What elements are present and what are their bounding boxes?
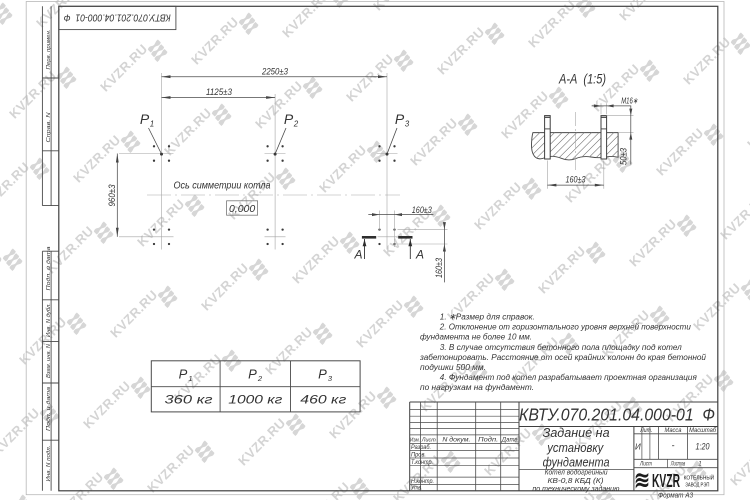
svg-text:Подп.: Подп. [478,437,498,444]
svg-text:1: 1 [698,461,701,468]
svg-text:Масштаб: Масштаб [689,427,716,434]
svg-text:960±3: 960±3 [107,184,118,207]
svg-text:Справ. N: Справ. N [46,112,52,143]
svg-text:4. Фундамент под котел разраба: 4. Фундамент под котел разрабатывает про… [440,372,697,382]
svg-text:2250±3: 2250±3 [261,66,288,77]
svg-text:Изм.: Изм. [410,438,420,444]
svg-text:3. В случае отсутствия бетонно: 3. В случае отсутствия бетонного пола пл… [440,342,682,352]
svg-text:360 кг: 360 кг [165,395,213,407]
svg-text:фундамента не более 10 мм.: фундамента не более 10 мм. [420,332,532,342]
svg-text:Разраб.: Разраб. [411,444,431,451]
svg-text:460 кг: 460 кг [300,395,346,407]
svg-text:2: 2 [257,374,263,383]
svg-text:A: A [353,248,362,262]
svg-text:Листов: Листов [670,461,686,468]
svg-text:Подп. и дата: Подп. и дата [46,386,52,431]
svg-text:160±3: 160±3 [434,258,444,278]
svg-text:1125±3: 1125±3 [206,87,233,98]
svg-text:Лист: Лист [639,461,652,468]
svg-text:P: P [318,367,327,382]
svg-text:2: 2 [293,120,299,129]
svg-text:A: A [415,248,424,262]
svg-text:М16∗: М16∗ [621,95,638,105]
svg-text:забетонировать. Расстояние от: забетонировать. Расстояние от осей крайн… [419,352,706,362]
svg-text:А-А (1:5): А-А (1:5) [558,72,606,87]
svg-text:P: P [284,111,294,127]
svg-text:Т.контр.: Т.контр. [411,459,433,466]
svg-text:Инв. N дубл.: Инв. N дубл. [46,303,52,337]
svg-text:160±3: 160±3 [566,175,586,185]
svg-text:Взам. инв. N: Взам. инв. N [46,343,52,378]
svg-text:1. ∗Размер для справок.: 1. ∗Размер для справок. [440,312,535,322]
svg-text:Дата: Дата [501,437,519,444]
svg-text:N докум.: N докум. [442,437,470,444]
svg-text:0,000: 0,000 [229,203,255,215]
svg-text:Ось симметрии котла: Ось симметрии котла [174,180,271,192]
svg-text:KVZR: KVZR [652,471,680,491]
svg-text:1: 1 [188,374,192,383]
svg-text:-: - [672,441,675,451]
svg-text:160±3: 160±3 [412,205,432,215]
svg-text:по техническому заданию: по техническому заданию [532,484,619,493]
svg-text:КВТУ.070.201.04.000-01 Ф: КВТУ.070.201.04.000-01 Ф [519,404,715,424]
svg-text:Инв. N подл.: Инв. N подл. [46,446,52,482]
svg-text:Подп. и дата: Подп. и дата [46,246,52,291]
svg-text:Перв. примен.: Перв. примен. [46,30,52,70]
svg-text:P: P [140,111,150,127]
svg-text:1:20: 1:20 [696,442,711,453]
svg-text:3: 3 [405,120,410,129]
svg-text:подушки 500 мм.: подушки 500 мм. [420,362,486,372]
svg-text:по нагрузкам на фундамент.: по нагрузкам на фундамент. [420,382,534,392]
svg-text:Пров.: Пров. [411,452,426,459]
svg-text:Формат А3: Формат А3 [658,490,694,499]
svg-text:И: И [635,443,641,452]
svg-text:Лит.: Лит. [639,427,652,434]
svg-text:Задание на: Задание на [543,426,610,440]
svg-text:P: P [179,367,188,382]
svg-text:1: 1 [150,120,154,129]
svg-text:установку: установку [546,441,604,455]
svg-text:КВТУ.070.201.04.000-01 Ф: КВТУ.070.201.04.000-01 Ф [64,12,171,24]
svg-text:P: P [395,111,405,127]
svg-text:Лист: Лист [421,438,436,444]
svg-text:50±3: 50±3 [618,148,628,165]
svg-text:P: P [248,367,257,382]
svg-text:2. Отклонение от горизонтально: 2. Отклонение от горизонтального уровня … [439,322,691,332]
svg-text:1000 кг: 1000 кг [228,395,282,407]
svg-text:Утв.: Утв. [410,485,422,492]
svg-text:Масса: Масса [665,427,683,434]
svg-text:КОТЕЛЬНЫЙ: КОТЕЛЬНЫЙ [684,473,715,481]
svg-text:ЗАВОД РЭП: ЗАВОД РЭП [685,482,709,488]
